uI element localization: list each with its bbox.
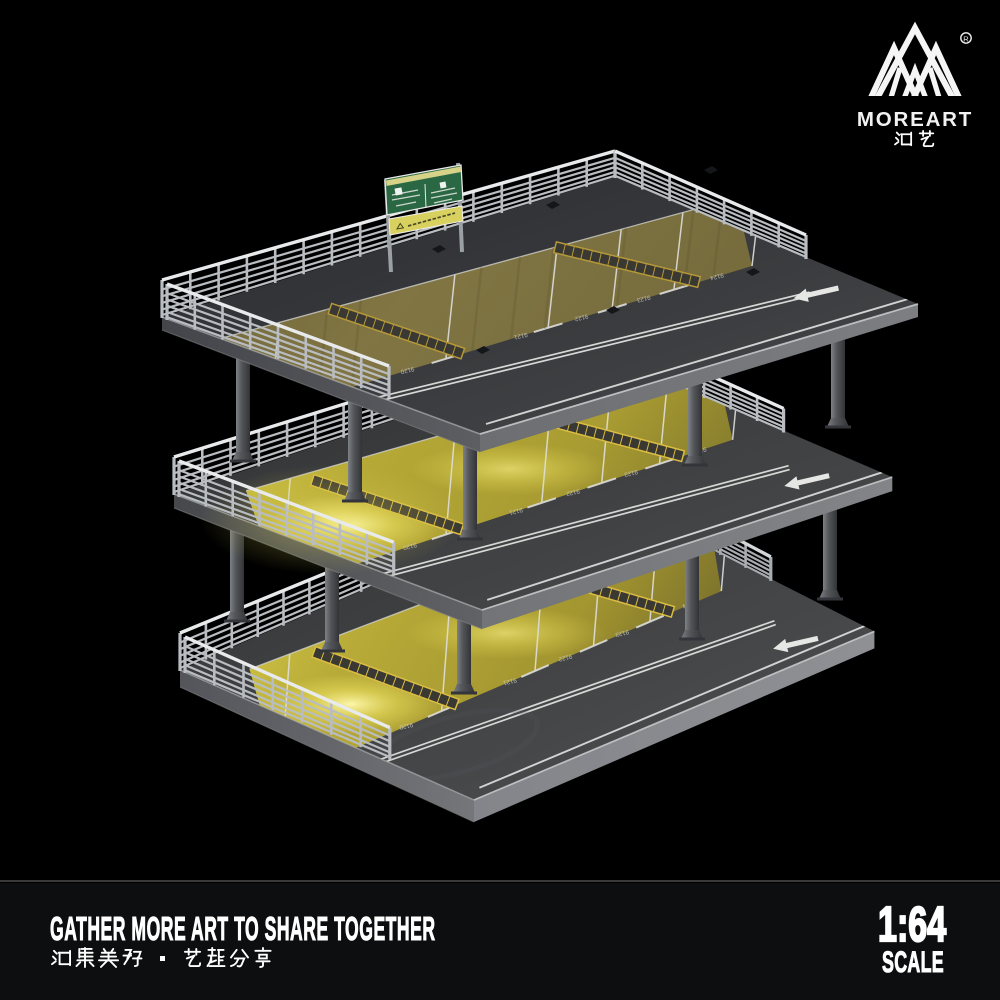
svg-text:R: R (963, 35, 969, 44)
